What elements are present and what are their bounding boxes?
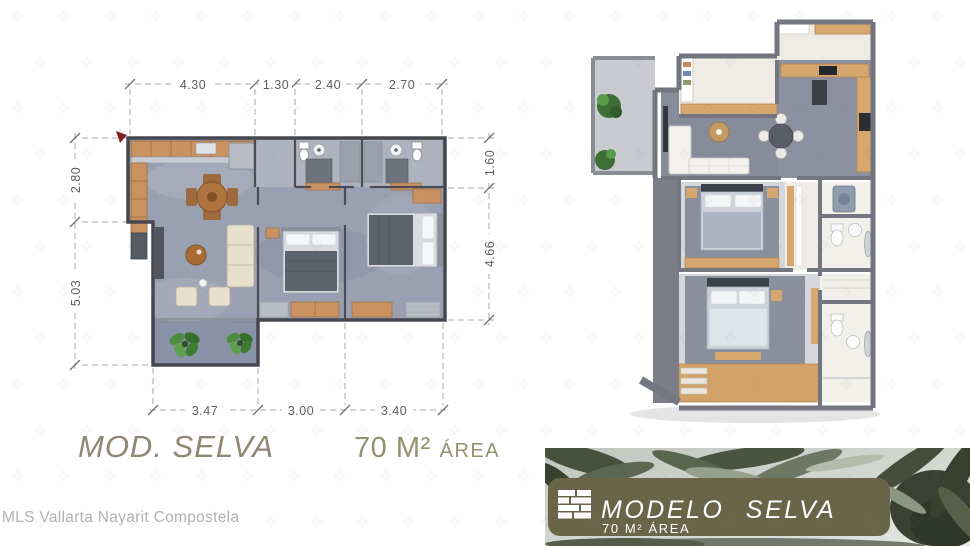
dim-top-1: 1.30 [263, 78, 289, 92]
render-bedroom-1 [685, 184, 779, 268]
dim-left-0: 2.80 [69, 167, 83, 193]
dim-bottom-1: 3.00 [288, 404, 314, 418]
banner-area-label: 70 M² ÁREA [602, 521, 690, 536]
dim-top-2: 2.40 [315, 78, 341, 92]
render-storage-room [779, 24, 871, 34]
model-banner: MODELO SELVA 70 M² ÁREA [545, 448, 970, 546]
floor-plan-2d: 4.30 1.30 2.40 2.70 2.80 5.03 1.60 4.66 … [0, 55, 545, 425]
dim-top-3: 2.70 [389, 78, 415, 92]
floor-plan-3d-render [585, 8, 885, 433]
dim-right-0: 1.60 [483, 150, 497, 176]
dim-bottom-2: 3.40 [381, 404, 407, 418]
render-balcony [593, 58, 655, 173]
plan-title: MOD. SELVA [78, 429, 274, 465]
plan-area: 70 M² ÁREA [354, 432, 500, 465]
dim-bottom-0: 3.47 [192, 404, 218, 418]
plan-area-label: ÁREA [440, 440, 500, 463]
dim-left-1: 5.03 [69, 280, 83, 306]
listing-image: 4.30 1.30 2.40 2.70 2.80 5.03 1.60 4.66 … [0, 0, 970, 546]
watermark-text: MLS Vallarta Nayarit Compostela [2, 509, 239, 527]
entry-marker [116, 131, 127, 143]
render-bedroom-2 [679, 276, 820, 402]
dim-top-0: 4.30 [180, 78, 206, 92]
banner-model-label: MODELO SELVA [601, 496, 836, 524]
plan-area-value: 70 M² [354, 432, 431, 465]
dim-right-1: 4.66 [483, 241, 497, 267]
